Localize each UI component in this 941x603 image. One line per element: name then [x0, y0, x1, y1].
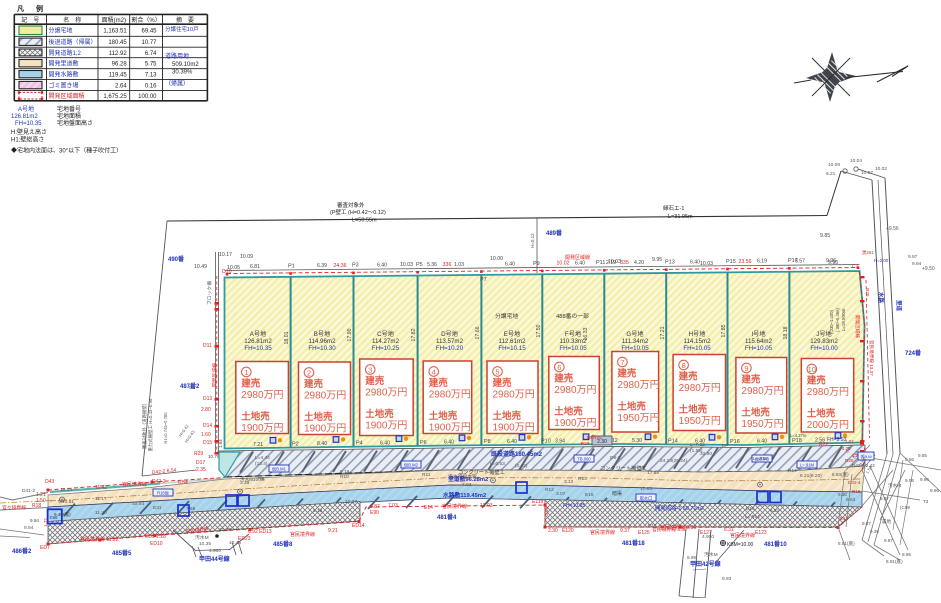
svg-text:土地売: 土地売: [493, 410, 522, 422]
svg-text:開発里道敷: 開発里道敷: [49, 60, 79, 68]
svg-text:3: 3: [368, 365, 372, 374]
svg-text:E14: E14: [424, 505, 433, 511]
svg-text:7.68: 7.68: [186, 506, 196, 512]
svg-text:D17: D17: [196, 460, 205, 466]
svg-text:D10: D10: [222, 269, 232, 275]
svg-text:H1:壁総高さ: H1:壁総高さ: [11, 136, 44, 144]
svg-text:縁石エ-1: 縁石エ-1: [663, 204, 684, 212]
svg-text:9.87: 9.87: [884, 538, 893, 543]
svg-text:開発道路1,2: 開発道路1,2: [49, 49, 82, 57]
svg-text:R26: R26: [865, 288, 870, 297]
svg-text:EP: EP: [722, 443, 728, 449]
svg-text:9.46(底): 9.46(底): [54, 511, 71, 518]
svg-text:2.35: 2.35: [196, 467, 206, 473]
svg-text:官民境界線: 官民境界線: [290, 531, 315, 538]
svg-text:R9: R9: [258, 476, 264, 482]
svg-text:485番5: 485番5: [112, 549, 132, 557]
svg-text:（帰属）: （帰属）: [165, 80, 189, 88]
svg-text:2000万円: 2000万円: [807, 420, 849, 431]
svg-text:(.330~1.400): (.330~1.400): [829, 309, 834, 333]
svg-text:D号地: D号地: [441, 330, 458, 338]
svg-text:111.34m2: 111.34m2: [622, 338, 649, 345]
svg-text:R12: R12: [545, 487, 554, 493]
svg-text:2.10: 2.10: [544, 507, 549, 516]
svg-text:L=.91M: L=.91M: [800, 463, 815, 468]
svg-text:E119: E119: [532, 499, 544, 505]
svg-text:1900万円: 1900万円: [429, 423, 471, 434]
svg-text:4: 4: [432, 367, 436, 376]
svg-text:129.83m2: 129.83m2: [810, 338, 838, 345]
svg-text:ED10: ED10: [150, 541, 163, 547]
svg-text:119.45: 119.45: [109, 72, 128, 78]
svg-text:8: 8: [682, 361, 686, 370]
svg-text:11.17: 11.17: [95, 496, 107, 502]
svg-text:土地売: 土地売: [554, 406, 583, 418]
svg-text:2980万円: 2980万円: [493, 390, 535, 401]
svg-text:9.95: 9.95: [902, 552, 911, 557]
svg-text:凡: 凡: [17, 5, 24, 13]
svg-text:2980万円: 2980万円: [304, 391, 346, 402]
svg-text:建売: 建売: [492, 377, 513, 389]
svg-text:9.87: 9.87: [880, 496, 889, 501]
svg-text:16.33: 16.33: [583, 327, 589, 340]
svg-text:面積(m2): 面積(m2): [102, 16, 126, 24]
svg-text:土地売: 土地売: [617, 401, 646, 413]
svg-text:E号地: E号地: [504, 330, 521, 338]
svg-text:1.04: 1.04: [218, 439, 223, 448]
svg-text:17.21: 17.21: [660, 326, 666, 339]
svg-text:5.36: 5.36: [427, 262, 437, 268]
svg-text:6.40: 6.40: [380, 440, 390, 446]
svg-text:9.37: 9.37: [620, 528, 630, 534]
svg-text:9.85: 9.85: [820, 233, 830, 239]
svg-text:(P壁工 (H=0.42～0.12): (P壁工 (H=0.42～0.12): [330, 208, 386, 216]
svg-text:D42-2: D42-2: [152, 479, 166, 485]
svg-text:2.80: 2.80: [201, 407, 211, 413]
svg-text:例: 例: [36, 4, 43, 13]
svg-text:9.18: 9.18: [313, 508, 323, 514]
svg-text:D41-2: D41-2: [22, 488, 35, 494]
svg-text:115.64m2: 115.64m2: [745, 338, 773, 345]
svg-text:1.15 R25: 1.15 R25: [582, 435, 602, 441]
svg-text:開発区域線: 開発区域線: [854, 315, 861, 338]
svg-text:10.02: 10.02: [557, 261, 570, 267]
svg-text:名 称: 名 称: [63, 16, 81, 24]
svg-text:1950万円: 1950万円: [741, 419, 783, 430]
svg-text:水路: 水路: [877, 292, 885, 304]
svg-text:10.14: 10.14: [60, 487, 72, 493]
svg-text:G号地: G号地: [626, 330, 643, 338]
svg-text:17.66: 17.66: [475, 326, 481, 339]
svg-text:(C99: (C99: [900, 505, 910, 510]
svg-text:官民境界線: 官民境界線: [122, 481, 147, 488]
svg-text:112.92: 112.92: [109, 51, 128, 57]
svg-text:開発道路-1 59.71m2: 開発道路-1 59.71m2: [655, 504, 704, 512]
svg-text:宅地盤面高さ: 宅地盤面高さ: [57, 119, 93, 127]
svg-text:審査対象外（道路擁壁）: 審査対象外（道路擁壁）: [141, 401, 148, 449]
svg-text:114.15m2: 114.15m2: [683, 338, 711, 345]
svg-text:2980万円: 2980万円: [617, 380, 659, 391]
svg-text:P5: P5: [416, 262, 423, 268]
svg-text:FH=10.05: FH=10.05: [745, 345, 773, 352]
svg-text:FH=9.93: FH=9.93: [827, 437, 847, 443]
svg-text:96.28: 96.28: [112, 62, 128, 68]
svg-text:P8: P8: [484, 439, 491, 445]
svg-text:L=31.95m: L=31.95m: [668, 214, 693, 220]
svg-text:FH=10.25: FH=10.25: [372, 345, 400, 352]
svg-text:L=.914: L=.914: [745, 514, 760, 520]
svg-text:D43: D43: [45, 479, 54, 485]
svg-text:9.21: 9.21: [328, 528, 338, 534]
svg-text:6.40: 6.40: [690, 259, 700, 265]
svg-text:E15: E15: [585, 492, 594, 498]
svg-text:10.49: 10.49: [194, 264, 207, 270]
svg-text:摘 要: 摘 要: [176, 16, 194, 24]
svg-text:6.40: 6.40: [505, 261, 515, 267]
svg-text:6: 6: [557, 363, 561, 372]
svg-text:7.03: 7.03: [462, 482, 472, 488]
svg-text:126.81m2: 126.81m2: [244, 338, 272, 345]
svg-text:0.16: 0.16: [145, 83, 157, 89]
svg-text:114.96m2: 114.96m2: [308, 338, 336, 345]
svg-text:4.900: 4.900: [702, 534, 714, 540]
svg-text:481番4: 481番4: [437, 513, 457, 521]
svg-text:R29: R29: [194, 451, 203, 457]
svg-text:P11: P11: [596, 260, 605, 266]
svg-text:建売: 建売: [303, 378, 324, 390]
svg-text:11.42: 11.42: [95, 485, 107, 491]
svg-text:ゴミ置き場: ゴミ置き場: [49, 81, 79, 89]
svg-text:10.27: 10.27: [345, 499, 357, 505]
svg-text:(0.42): (0.42): [515, 463, 528, 469]
svg-text:2.30: 2.30: [548, 528, 558, 534]
svg-text:724番: 724番: [905, 349, 922, 357]
svg-text:E123: E123: [755, 530, 767, 536]
svg-text:H1=0.745~0.780: H1=0.745~0.780: [163, 412, 168, 444]
svg-text:L=.855: L=.855: [753, 456, 768, 462]
svg-text:重力式擁壁工 H=0.43~0.95: 重力式擁壁工 H=0.43~0.95: [147, 398, 154, 452]
svg-text:官民境界線 11.22: 官民境界線 11.22: [80, 536, 119, 543]
svg-text:17.90: 17.90: [347, 328, 353, 341]
svg-text:後退道路（帰属）: 後退道路（帰属）: [49, 38, 97, 46]
svg-text:17.50: 17.50: [536, 324, 542, 337]
svg-text:17.85: 17.85: [721, 324, 727, 337]
svg-text:6.40: 6.40: [377, 263, 387, 269]
svg-text:⊙10.51: ⊙10.51: [58, 499, 74, 505]
svg-text:建売: 建売: [553, 373, 574, 385]
svg-text:2980万円: 2980万円: [741, 386, 783, 397]
svg-text:既設道路180.45m2: 既設道路180.45m2: [491, 450, 543, 458]
svg-text:L=50.55m: L=50.55m: [352, 218, 377, 224]
svg-text:6.40: 6.40: [444, 440, 454, 446]
svg-text:E125: E125: [638, 530, 650, 536]
svg-text:1900万円: 1900万円: [241, 423, 283, 434]
svg-text:10: 10: [808, 365, 816, 374]
svg-text:6.40: 6.40: [575, 261, 585, 267]
svg-text:8.91(底): 8.91(底): [886, 558, 903, 565]
svg-text:D42-4: D42-4: [848, 480, 861, 485]
svg-text:113.57m2: 113.57m2: [436, 338, 464, 345]
svg-text:ブロック塀: ブロック塀: [206, 281, 213, 305]
svg-text:D13: D13: [203, 396, 212, 402]
svg-text:10.78: 10.78: [208, 454, 220, 459]
svg-text:9.63: 9.63: [846, 497, 856, 503]
svg-text:9: 9: [744, 364, 748, 373]
svg-text:I号地: I号地: [751, 330, 765, 338]
svg-text:8.93(底): 8.93(底): [832, 471, 849, 478]
svg-text:FH=10.35: FH=10.35: [244, 345, 272, 352]
svg-text:官々境界線: 官々境界線: [2, 504, 26, 511]
svg-text:建売: 建売: [740, 374, 761, 386]
svg-text:481番18: 481番18: [622, 539, 645, 547]
svg-text:P18: P18: [792, 438, 802, 444]
svg-text:分譲住宅10戸: 分譲住宅10戸: [165, 25, 199, 33]
svg-text:3.94: 3.94: [555, 439, 565, 445]
svg-text:10.04: 10.04: [850, 158, 862, 164]
svg-text:1900万円: 1900万円: [493, 423, 535, 434]
svg-text:P14: P14: [668, 438, 678, 444]
svg-text:3.12: 3.12: [564, 479, 574, 485]
svg-text:9.06: 9.06: [905, 478, 914, 483]
svg-text:6.40: 6.40: [507, 439, 517, 445]
svg-text:開発区域線: 開発区域線: [565, 254, 590, 261]
svg-text:甲田44号線: 甲田44号線: [199, 555, 230, 563]
svg-text:L=0.53: L=0.53: [490, 461, 505, 467]
svg-text:9.95: 9.95: [652, 257, 662, 263]
svg-text:P2: P2: [292, 442, 299, 448]
svg-text:1900万円: 1900万円: [365, 421, 407, 432]
svg-text:H号地: H号地: [689, 330, 706, 338]
svg-text:R15: R15: [852, 489, 861, 494]
svg-text:L=18.500m: L=18.500m: [841, 308, 846, 331]
svg-text:土地売: 土地売: [429, 410, 458, 422]
svg-text:建売: 建売: [806, 375, 827, 387]
svg-text:官民境界線: 官民境界線: [590, 529, 615, 536]
svg-text:4.20: 4.20: [634, 260, 644, 266]
svg-text:建売: 建売: [428, 377, 449, 389]
svg-text:10.44: 10.44: [219, 527, 231, 533]
svg-text:2980万円: 2980万円: [679, 383, 721, 394]
svg-text:7: 7: [620, 358, 624, 367]
svg-text:24.13(25.24): 24.13(25.24): [660, 458, 688, 464]
svg-text:土地売: 土地売: [679, 404, 708, 416]
svg-text:100.00: 100.00: [138, 94, 157, 100]
svg-text:112.61m2: 112.61m2: [498, 338, 526, 345]
svg-text:B号地: B号地: [314, 330, 331, 338]
svg-text:1.60: 1.60: [201, 432, 211, 438]
svg-text:汚水流接本管: 汚水流接本管: [448, 473, 477, 480]
svg-text:2980万円: 2980万円: [807, 387, 849, 398]
svg-text:FH=10.35: FH=10.35: [15, 121, 42, 127]
svg-text:2.64: 2.64: [115, 83, 127, 89]
svg-text:宅地面積: 宅地面積: [57, 112, 81, 120]
svg-text:9.8: 9.8: [189, 385, 196, 390]
svg-text:FH=10.05: FH=10.05: [683, 345, 711, 352]
svg-text:1950万円: 1950万円: [679, 416, 721, 427]
svg-text:A号地: A号地: [250, 330, 267, 338]
svg-text:R10: R10: [340, 474, 349, 480]
svg-text:P4: P4: [356, 441, 363, 447]
svg-text:6.57: 6.57: [795, 258, 805, 264]
svg-text:1,675.25: 1,675.25: [103, 94, 127, 100]
svg-text:R23: R23: [581, 441, 590, 447]
svg-text:10.09: 10.09: [240, 254, 253, 260]
svg-text:FH=10.15: FH=10.15: [498, 345, 526, 352]
svg-text:P16: P16: [730, 439, 740, 445]
svg-text:10.03: 10.03: [608, 259, 621, 265]
svg-text:9.96: 9.96: [930, 488, 939, 493]
svg-text:6.21(8.20): 6.21(8.20): [800, 473, 822, 479]
svg-text:農地: 農地: [882, 518, 892, 525]
svg-text:土地売: 土地売: [807, 408, 836, 420]
svg-text:10.77: 10.77: [141, 40, 157, 46]
svg-text:P3: P3: [352, 263, 359, 269]
svg-text:485番8: 485番8: [273, 540, 293, 548]
svg-text:481番10: 481番10: [764, 540, 787, 548]
svg-text:17.83: 17.83: [640, 486, 652, 492]
svg-text:建売: 建売: [364, 375, 385, 387]
svg-text:17.82: 17.82: [411, 328, 417, 341]
svg-text:10.44: 10.44: [132, 501, 144, 507]
svg-text:1,163.51: 1,163.51: [103, 29, 127, 35]
svg-text:7.13: 7.13: [145, 72, 157, 78]
svg-text:6.81: 6.81: [250, 264, 260, 270]
svg-text:6.54: 6.54: [178, 480, 188, 486]
svg-text:9.94: 9.94: [30, 518, 39, 523]
svg-text:官民境界線: 官民境界線: [442, 503, 467, 510]
svg-text:ED14: ED14: [352, 523, 365, 529]
svg-text:9.96: 9.96: [828, 260, 838, 266]
svg-text:官民境界線 8.38: 官民境界線 8.38: [652, 526, 687, 533]
svg-text:9.87: 9.87: [862, 521, 871, 526]
svg-text:D14: D14: [203, 423, 212, 429]
svg-text:割合（%）: 割合（%）: [131, 16, 160, 24]
svg-text:4.900: 4.900: [209, 548, 221, 554]
svg-text:6.19: 6.19: [757, 259, 767, 265]
svg-text:126.81m2: 126.81m2: [11, 114, 38, 120]
svg-text:汚水M: 汚水M: [195, 534, 209, 541]
svg-text:(.380~0.466): (.380~0.466): [835, 307, 840, 331]
svg-text:P7: P7: [480, 277, 487, 283]
svg-text:D9-2: D9-2: [610, 455, 621, 461]
svg-text:道路用地: 道路用地: [165, 52, 189, 60]
svg-text:18.18: 18.18: [783, 326, 789, 339]
svg-text:3.07: 3.07: [556, 491, 566, 497]
svg-text:建売: 建売: [616, 368, 637, 380]
svg-text:甲田42号線: 甲田42号線: [690, 560, 721, 568]
svg-text:仮B.M2: 仮B.M2: [404, 462, 419, 469]
svg-text:審査対象外: 審査対象外: [337, 201, 365, 209]
svg-text:水路敷119.45m2: 水路敷119.45m2: [443, 491, 486, 499]
svg-text:509.10m2: 509.10m2: [172, 62, 199, 68]
svg-text:17.88: 17.88: [647, 470, 659, 476]
svg-text:8.81(底): 8.81(底): [838, 540, 855, 547]
svg-text:1950万円: 1950万円: [617, 413, 659, 424]
svg-text:FH=10.20: FH=10.20: [436, 345, 464, 352]
svg-text:(1.55): (1.55): [690, 448, 703, 454]
svg-text:10.03: 10.03: [700, 261, 713, 267]
svg-text:2980万円: 2980万円: [241, 390, 283, 401]
svg-text:P9: P9: [533, 261, 540, 267]
svg-text:11.20: 11.20: [95, 510, 107, 516]
svg-text:R16仮: R16仮: [157, 490, 170, 497]
svg-text:489番: 489番: [546, 229, 563, 237]
svg-text:9.96: 9.96: [920, 477, 929, 482]
svg-text:9.94: 9.94: [912, 261, 922, 267]
svg-text:10.17: 10.17: [219, 252, 232, 258]
svg-text:開発区域線: 開発区域線: [211, 363, 218, 387]
svg-text:H:壁見え高さ: H:壁見え高さ: [11, 128, 47, 136]
svg-text:R14: R14: [788, 468, 797, 474]
svg-text:6.21: 6.21: [770, 508, 780, 514]
svg-text:C号地: C号地: [377, 330, 394, 338]
svg-text:6.74: 6.74: [145, 51, 157, 57]
svg-text:P10: P10: [541, 439, 551, 445]
svg-text:汚水M: 汚水M: [888, 482, 901, 489]
svg-text:土地売: 土地売: [365, 408, 394, 420]
svg-text:E120: E120: [562, 528, 574, 534]
svg-text:486番2: 486番2: [12, 547, 32, 555]
svg-text:H=2.00: H=2.00: [874, 258, 889, 263]
svg-text:10.09: 10.09: [828, 162, 840, 168]
svg-text:1.03: 1.03: [454, 262, 464, 268]
svg-text:114.27m2: 114.27m2: [372, 338, 400, 345]
svg-text:6.40: 6.40: [757, 439, 767, 445]
svg-text:P6: P6: [420, 440, 427, 446]
svg-text:10.00: 10.00: [490, 256, 503, 262]
svg-text:R11: R11: [422, 472, 431, 478]
svg-text:18.01: 18.01: [284, 331, 290, 344]
svg-text:5.75: 5.75: [145, 62, 157, 68]
svg-text:6.39: 6.39: [317, 263, 327, 269]
svg-text:10.35: 10.35: [199, 541, 211, 547]
svg-text:9.99: 9.99: [687, 555, 696, 560]
svg-text:10.45: 10.45: [229, 540, 241, 546]
svg-text:180.45: 180.45: [108, 40, 127, 46]
svg-text:1: 1: [244, 368, 248, 377]
svg-text:官民境界線: 官民境界線: [730, 532, 755, 539]
svg-text:土地売: 土地売: [741, 407, 770, 419]
svg-text:KBM=10.00: KBM=10.00: [727, 542, 753, 548]
svg-text:9.97: 9.97: [908, 254, 918, 260]
svg-text:0.92 ED13: 0.92 ED13: [248, 529, 272, 535]
svg-text:+9.50: +9.50: [922, 266, 935, 272]
svg-text:R18: R18: [32, 503, 41, 509]
svg-text:H=0.12: H=0.12: [530, 233, 535, 248]
svg-text:暗渠: 暗渠: [612, 490, 622, 497]
svg-text:(13.4): (13.4): [255, 461, 268, 467]
svg-text:建売: 建売: [678, 371, 699, 383]
svg-text:官民境界線 13.37: 官民境界線 13.37: [868, 340, 875, 376]
svg-text:488番の一部: 488番の一部: [556, 312, 589, 320]
svg-text:D15: D15: [203, 440, 212, 446]
svg-text:9.94: 9.94: [24, 525, 34, 531]
svg-text:FH=10.05: FH=10.05: [563, 503, 585, 509]
svg-text:9.30: 9.30: [838, 492, 847, 497]
svg-text:P15: P15: [726, 259, 736, 265]
svg-text:1.07: 1.07: [845, 439, 854, 444]
svg-text:分譲宅地: 分譲宅地: [49, 27, 73, 35]
svg-text:FH=10.05: FH=10.05: [559, 345, 587, 352]
svg-text:コンクリート擁壁工: コンクリート擁壁工: [600, 464, 647, 472]
svg-text:2980万円: 2980万円: [365, 388, 407, 399]
svg-text:土地売: 土地売: [241, 411, 270, 423]
svg-text:FH=10.30: FH=10.30: [308, 345, 336, 352]
svg-text:23.56: 23.56: [739, 259, 752, 265]
svg-text:ED7: ED7: [40, 545, 50, 551]
svg-text:P1: P1: [288, 263, 295, 269]
svg-text:P13: P13: [665, 259, 675, 265]
